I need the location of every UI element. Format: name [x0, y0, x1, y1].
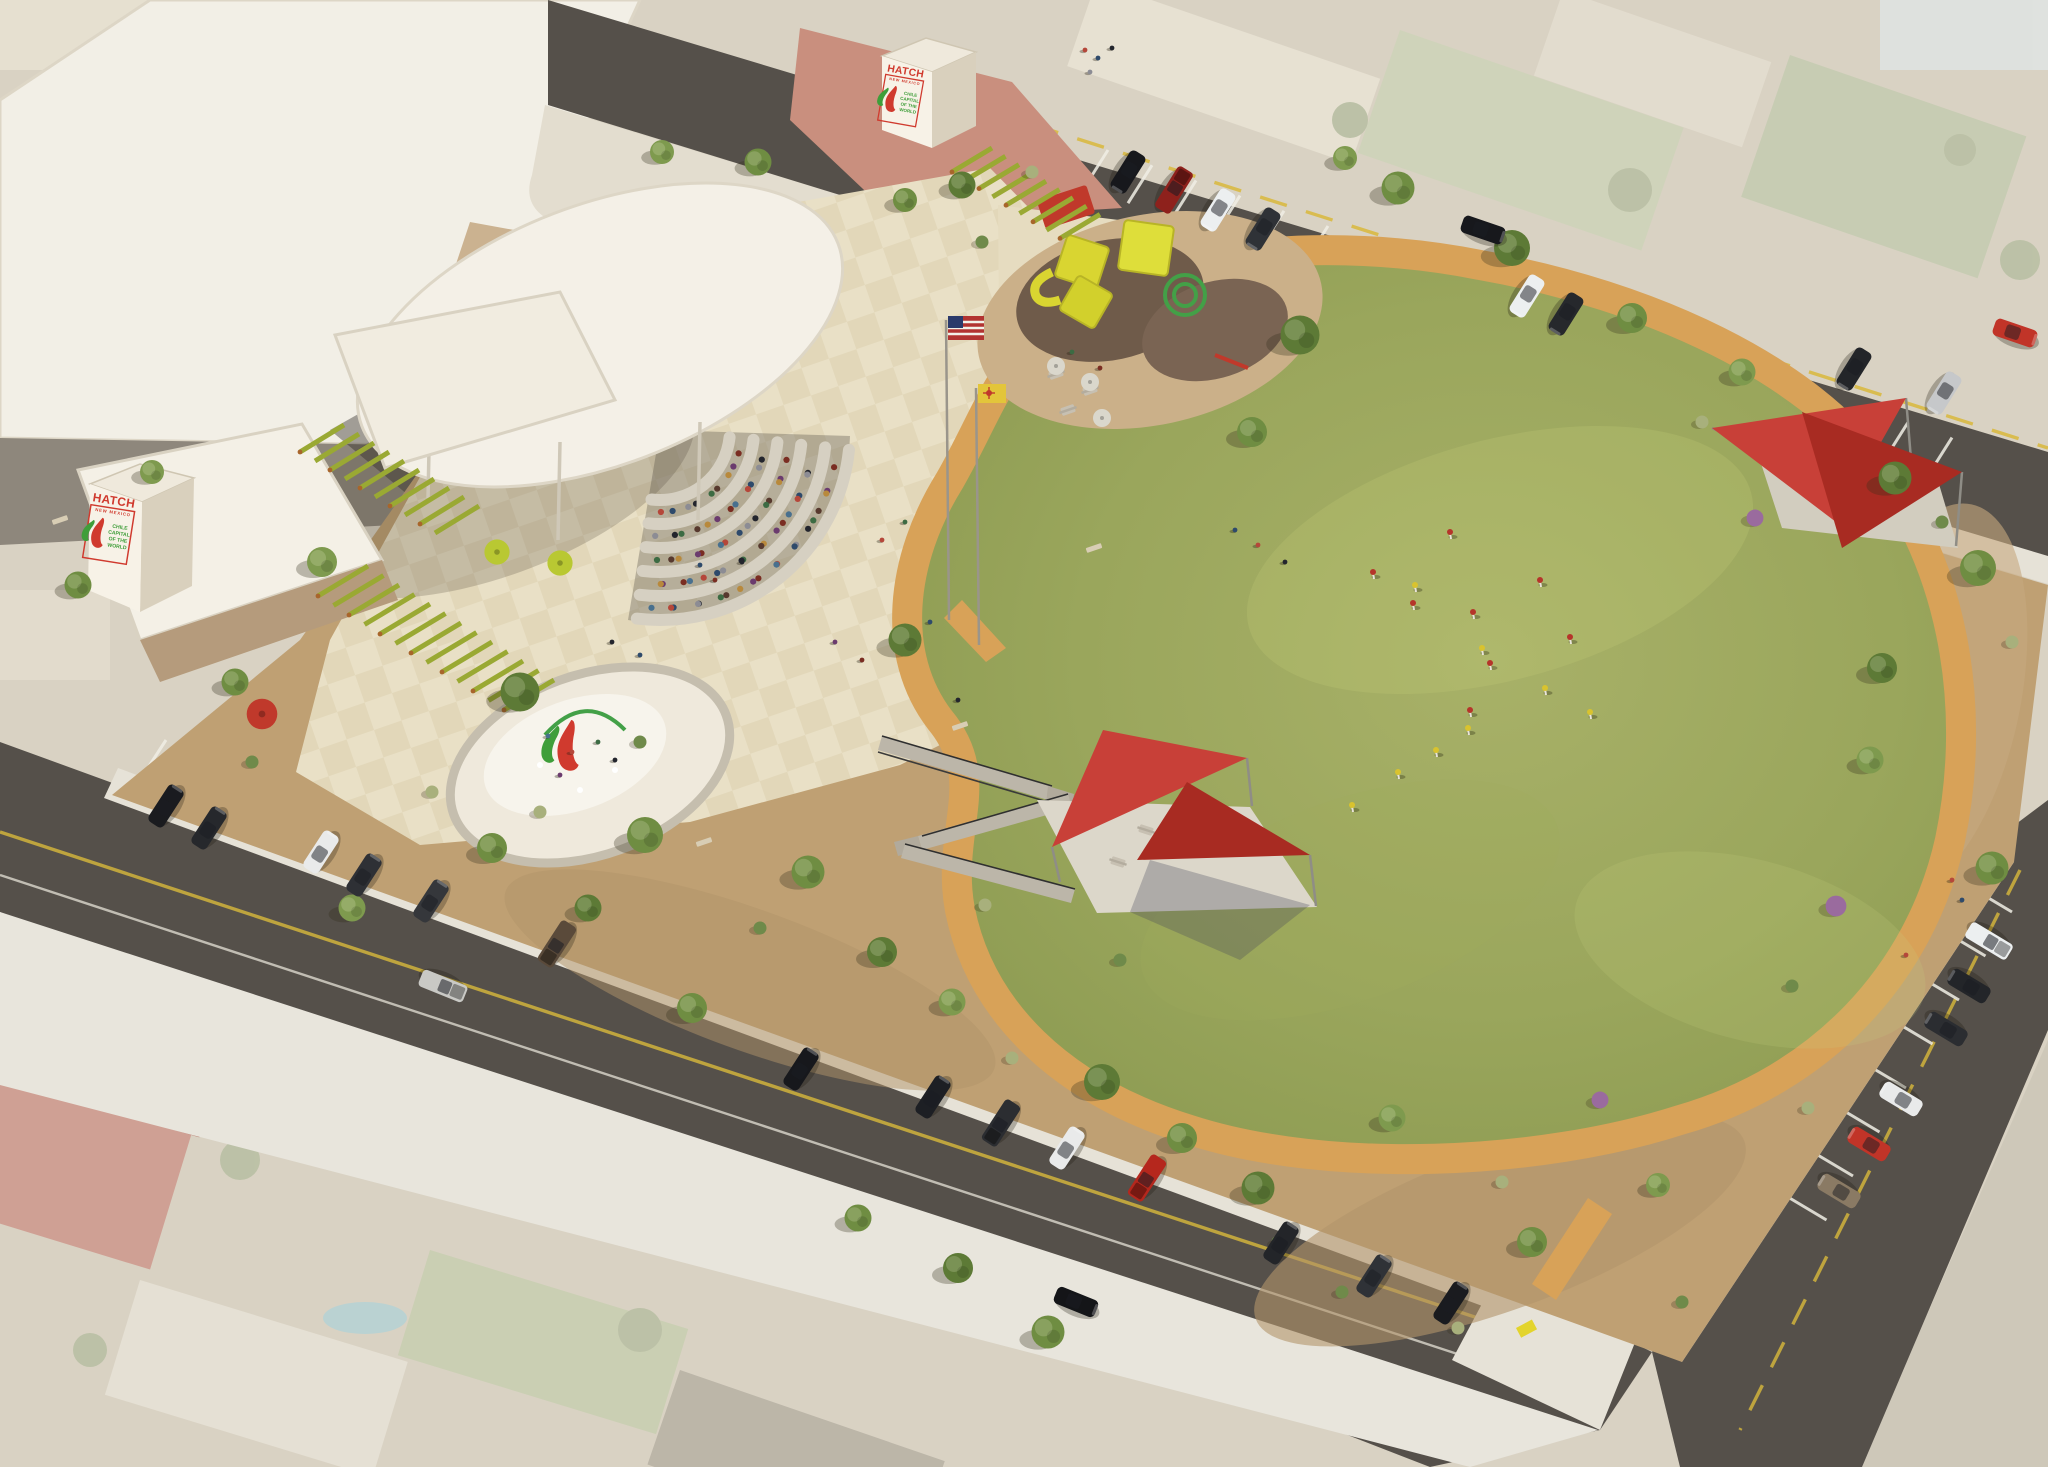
pergola-post: [1004, 203, 1009, 208]
context-tree: [1608, 168, 1652, 212]
picnic-umbrella: [1081, 373, 1099, 391]
pergola-post: [1031, 219, 1036, 224]
soccer-player: [1542, 685, 1548, 691]
green-patio-umbrella: [547, 550, 572, 575]
audience-member: [718, 542, 724, 548]
audience-member: [786, 511, 792, 517]
pergola-post: [316, 594, 321, 599]
soccer-player: [1349, 802, 1355, 808]
context-roof-blue: [1880, 0, 2048, 70]
audience-member: [652, 533, 658, 539]
audience-member: [714, 570, 720, 576]
park-aerial-rendering: HATCH NEW MEXICO CHILE CAPITAL OF THE WO…: [0, 0, 2048, 1467]
pergola-post: [440, 670, 445, 675]
audience-member: [658, 509, 664, 515]
audience-member: [776, 479, 782, 485]
audience-member: [752, 515, 758, 521]
pergola-post: [358, 486, 363, 491]
audience-member: [736, 450, 742, 456]
pergola-post: [1058, 236, 1063, 241]
audience-member: [695, 551, 701, 557]
audience-member: [672, 532, 678, 538]
audience-member: [714, 486, 720, 492]
context-swimming-pool: [323, 1302, 407, 1334]
pergola-post: [471, 689, 476, 694]
audience-member: [723, 592, 729, 598]
audience-member: [670, 508, 676, 514]
rendering-canvas: HATCH NEW MEXICO CHILE CAPITAL OF THE WO…: [0, 0, 2048, 1467]
audience-member: [759, 457, 765, 463]
red-patio-umbrella: [247, 699, 278, 730]
audience-member: [783, 457, 789, 463]
soccer-player: [1487, 660, 1493, 666]
canopy-post: [558, 442, 560, 540]
canopy-post: [698, 422, 700, 520]
pergola-post: [298, 450, 303, 455]
audience-member: [709, 491, 715, 497]
hatch-sign-tower-north: HATCH NEW MEXICO CHILE CAPITAL OF THE WO…: [872, 38, 976, 148]
audience-member: [745, 486, 751, 492]
audience-member: [745, 523, 751, 529]
audience-member: [780, 520, 786, 526]
audience-member: [654, 557, 660, 563]
audience-member: [816, 508, 822, 514]
audience-member: [694, 526, 700, 532]
pergola-post: [418, 522, 423, 527]
audience-member: [658, 581, 664, 587]
audience-member: [681, 579, 687, 585]
audience-member: [756, 465, 762, 471]
context-tree: [618, 1308, 662, 1352]
audience-member: [725, 472, 731, 478]
picnic-umbrella: [1047, 357, 1065, 375]
audience-member: [792, 543, 798, 549]
new-mexico-flag: [978, 384, 1006, 403]
context-tree: [2000, 240, 2040, 280]
soccer-player: [1465, 725, 1471, 731]
us-flag: [948, 316, 984, 340]
context-tree: [1944, 134, 1976, 166]
audience-member: [687, 578, 693, 584]
pergola-post: [950, 170, 955, 175]
green-patio-umbrella: [484, 539, 509, 564]
context-tree: [73, 1333, 107, 1367]
audience-member: [750, 579, 756, 585]
audience-member: [668, 605, 674, 611]
soccer-player: [1412, 582, 1418, 588]
audience-member: [720, 567, 726, 573]
soccer-player: [1370, 569, 1376, 575]
audience-member: [823, 490, 829, 496]
audience-member: [805, 526, 811, 532]
audience-member: [678, 531, 684, 537]
audience-member: [705, 522, 711, 528]
audience-member: [810, 517, 816, 523]
audience-member: [737, 530, 743, 536]
audience-member: [728, 506, 734, 512]
audience-member: [758, 543, 764, 549]
audience-member: [714, 516, 720, 522]
water-spray: [537, 762, 543, 768]
pergola-post: [977, 186, 982, 191]
audience-member: [730, 463, 736, 469]
picnic-umbrella: [1093, 409, 1111, 427]
soccer-player: [1447, 529, 1453, 535]
soccer-player: [1567, 634, 1573, 640]
soccer-player: [1587, 709, 1593, 715]
audience-member: [755, 575, 761, 581]
shade-canopy-yellow: [1118, 220, 1174, 276]
audience-member: [685, 504, 691, 510]
audience-member: [701, 575, 707, 581]
audience-member: [774, 528, 780, 534]
context-roof: [0, 590, 110, 680]
audience-member: [695, 601, 701, 607]
audience-member: [804, 472, 810, 478]
flag-canton: [948, 316, 963, 328]
soccer-player: [1467, 707, 1473, 713]
pergola-post: [378, 632, 383, 637]
context-tree: [1332, 102, 1368, 138]
audience-member: [668, 556, 674, 562]
audience-member: [763, 502, 769, 508]
pergola-post: [347, 613, 352, 618]
soccer-player: [1395, 769, 1401, 775]
pergola-post: [328, 468, 333, 473]
audience-member: [795, 496, 801, 502]
audience-member: [773, 562, 779, 568]
soccer-player: [1470, 609, 1476, 615]
pergola-post: [388, 504, 393, 509]
audience-member: [676, 556, 682, 562]
soccer-player: [1537, 577, 1543, 583]
audience-member: [718, 594, 724, 600]
audience-member: [648, 605, 654, 611]
water-spray: [577, 787, 583, 793]
hatch-sign-tower-west: HATCH NEW MEXICO CHILE CAPITAL OF THE WO…: [76, 464, 194, 612]
audience-member: [831, 464, 837, 470]
audience-member: [732, 501, 738, 507]
pergola-post: [409, 651, 414, 656]
soccer-player: [1410, 600, 1416, 606]
soccer-player: [1479, 645, 1485, 651]
audience-member: [737, 586, 743, 592]
soccer-player: [1433, 747, 1439, 753]
water-spray: [612, 767, 618, 773]
